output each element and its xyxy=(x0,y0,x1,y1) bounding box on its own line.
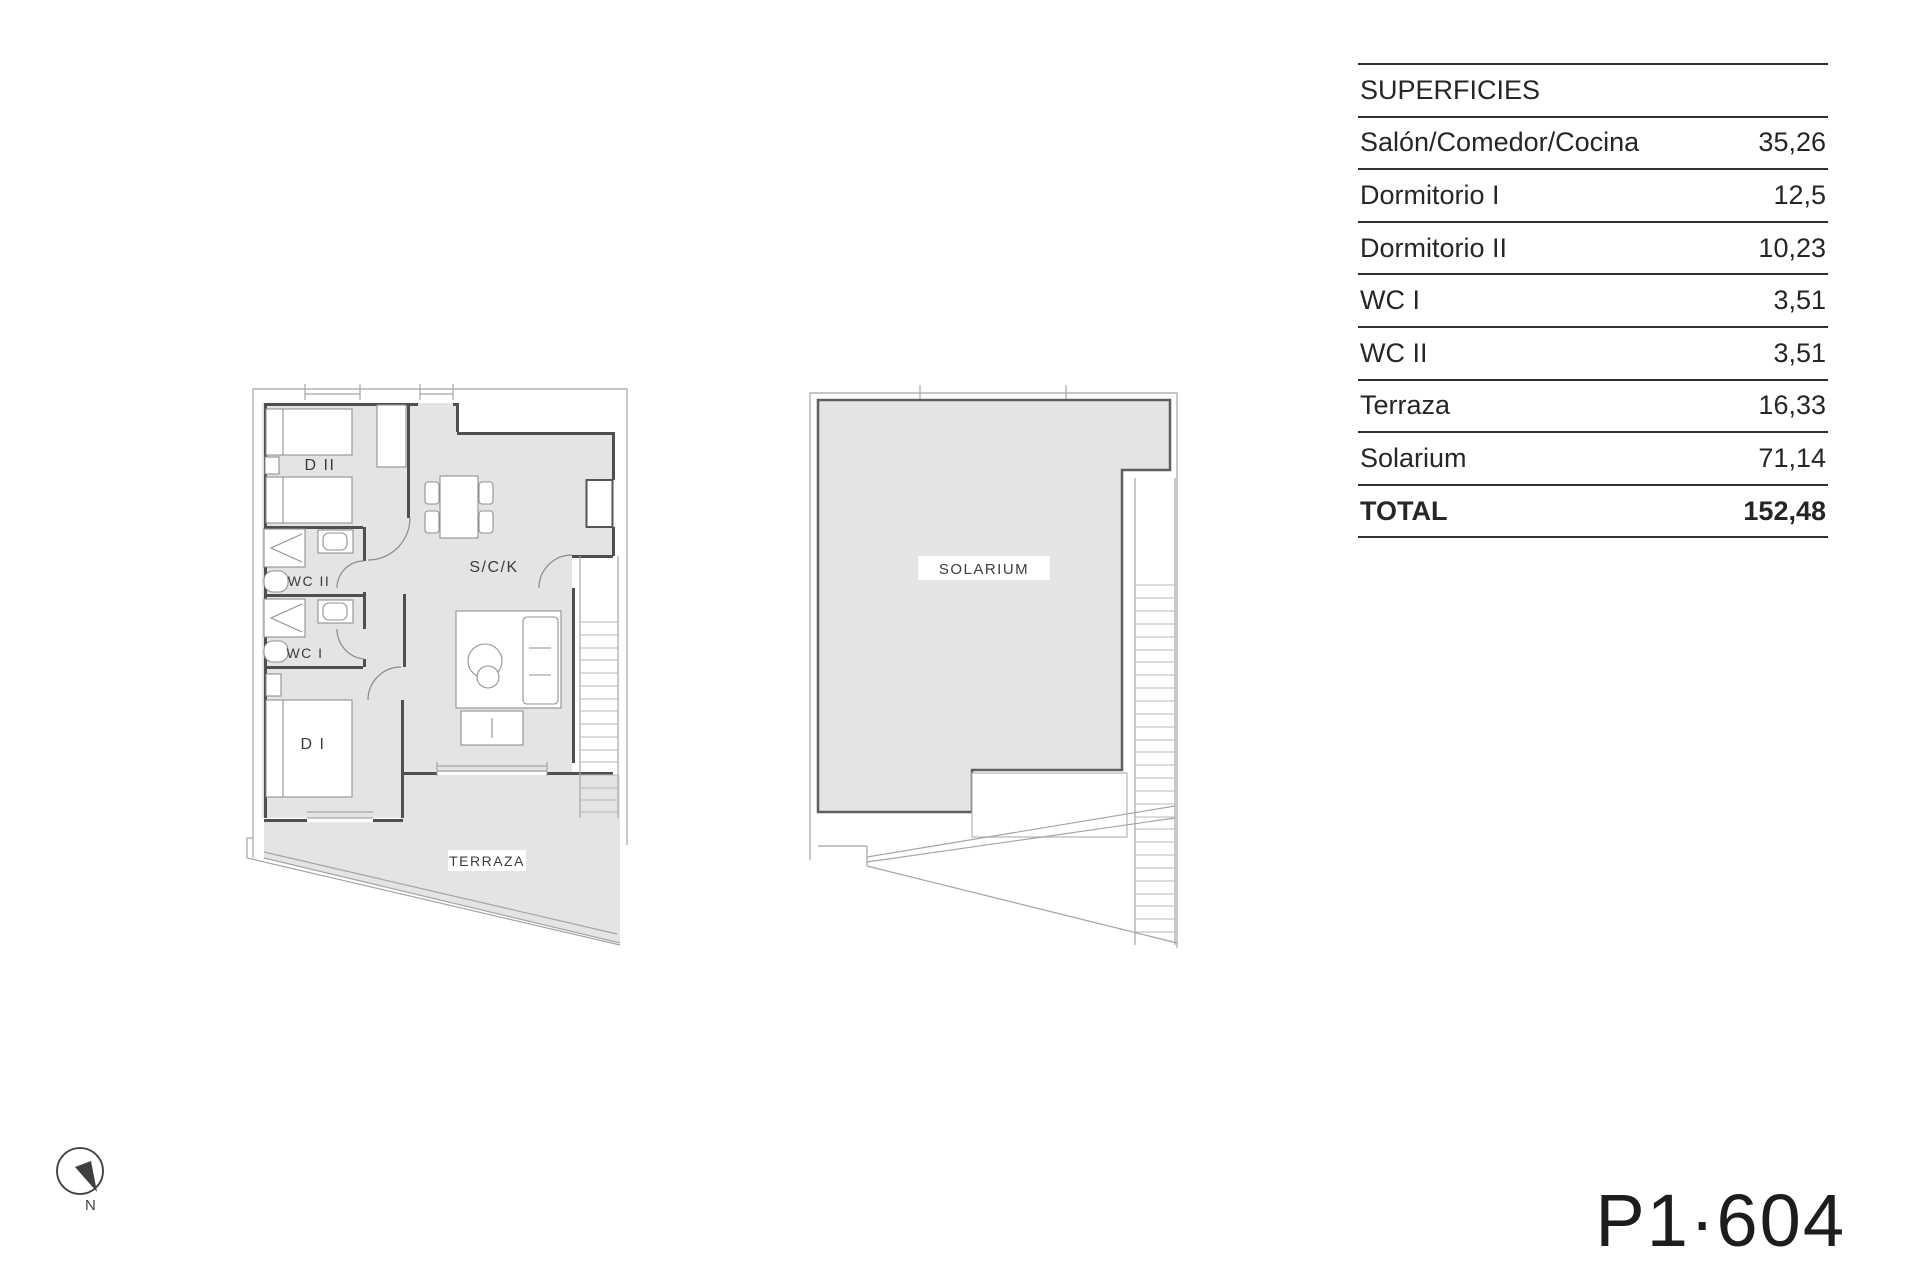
total-label: TOTAL xyxy=(1360,498,1448,525)
sink-basin-2 xyxy=(323,533,347,550)
table-row-total: TOTAL 152,48 xyxy=(1358,486,1828,539)
floor-plan-sheet: D II WC II WC I D I S/C/K TERRAZA SOLARI… xyxy=(0,0,1920,1280)
north-arrow-icon: N xyxy=(57,1148,103,1214)
row-value: 12,5 xyxy=(1773,182,1826,209)
lower-level-outline xyxy=(972,773,1127,837)
room-label-bedroom2: D II xyxy=(305,457,336,474)
room-label-bedroom1: D I xyxy=(301,736,326,753)
chair xyxy=(479,511,493,533)
solarium-stairs-treads xyxy=(1135,585,1175,932)
row-label: Salón/Comedor/Cocina xyxy=(1360,129,1639,156)
row-value: 16,33 xyxy=(1758,392,1826,419)
apartment-floor-plan: D II WC II WC I D I S/C/K TERRAZA xyxy=(247,384,627,945)
row-label: WC II xyxy=(1360,340,1428,367)
table-row: Salón/Comedor/Cocina 35,26 xyxy=(1358,118,1828,171)
sink-basin-1 xyxy=(323,603,347,620)
dining-table xyxy=(440,476,478,538)
room-label-wc1: WC I xyxy=(286,645,323,661)
row-value: 10,23 xyxy=(1758,235,1826,262)
table-row: WC II 3,51 xyxy=(1358,328,1828,381)
bed-single-1 xyxy=(266,409,352,455)
nightstand xyxy=(265,457,279,474)
row-label: WC I xyxy=(1360,287,1420,314)
table-row: Terraza 16,33 xyxy=(1358,381,1828,434)
kitchen-sink-small xyxy=(477,666,499,688)
solarium-top-ticks xyxy=(920,385,1066,399)
plan-code: P1·604 xyxy=(1595,1184,1846,1258)
surfaces-table: SUPERFICIES Salón/Comedor/Cocina 35,26 D… xyxy=(1358,63,1828,538)
top-window-lines xyxy=(305,384,453,400)
surfaces-table-header: SUPERFICIES xyxy=(1358,63,1828,118)
row-label: Dormitorio II xyxy=(1360,235,1507,262)
surfaces-table-title: SUPERFICIES xyxy=(1360,77,1540,104)
room-label-wc2: WC II xyxy=(288,573,331,589)
table-row: Dormitorio I 12,5 xyxy=(1358,170,1828,223)
compass-needle xyxy=(75,1161,97,1192)
row-value: 3,51 xyxy=(1773,340,1826,367)
kitchen-counter xyxy=(523,617,558,704)
living-notch xyxy=(587,480,613,527)
row-label: Dormitorio I xyxy=(1360,182,1500,209)
table-row: Solarium 71,14 xyxy=(1358,433,1828,486)
table-row: Dormitorio II 10,23 xyxy=(1358,223,1828,276)
row-value: 3,51 xyxy=(1773,287,1826,314)
chair xyxy=(425,511,439,533)
row-value: 71,14 xyxy=(1758,445,1826,472)
row-label: Terraza xyxy=(1360,392,1450,419)
solarium-stairs-rails xyxy=(1135,478,1175,945)
compass-north-label: N xyxy=(85,1197,96,1214)
bed-single-2 xyxy=(266,477,352,523)
table-row: WC I 3,51 xyxy=(1358,275,1828,328)
nightstand xyxy=(266,674,281,696)
solarium-floor-plan: SOLARIUM xyxy=(810,385,1177,948)
room-label-living: S/C/K xyxy=(469,559,518,576)
wardrobe xyxy=(377,405,406,467)
solarium-floor-fill xyxy=(818,400,1170,812)
row-value: 35,26 xyxy=(1758,129,1826,156)
chair xyxy=(479,482,493,504)
toilet-2 xyxy=(264,571,288,592)
solarium-label: SOLARIUM xyxy=(939,561,1029,578)
row-label: Solarium xyxy=(1360,445,1467,472)
chair xyxy=(425,482,439,504)
toilet-1 xyxy=(264,641,288,662)
total-value: 152,48 xyxy=(1743,498,1826,525)
room-label-terrace: TERRAZA xyxy=(449,853,525,869)
